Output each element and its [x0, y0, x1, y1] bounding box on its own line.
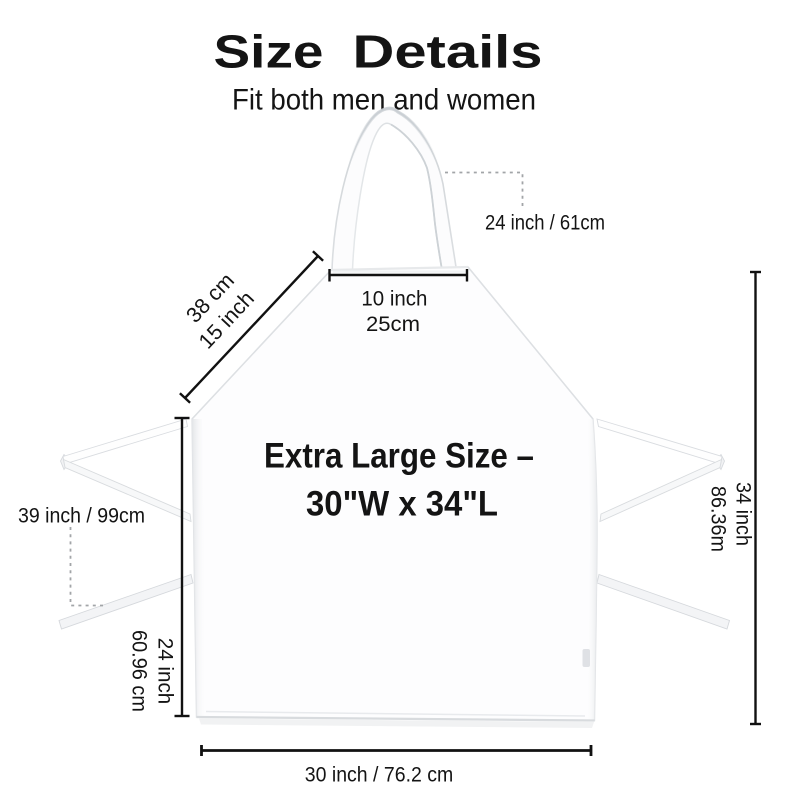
svg-text:24 inch / 61cm: 24 inch / 61cm [485, 211, 605, 235]
svg-text:86.36m: 86.36m [707, 486, 731, 552]
svg-text:34 inch: 34 inch [732, 482, 756, 546]
svg-text:Details: Details [353, 26, 543, 78]
svg-text:30 inch / 76.2 cm: 30 inch / 76.2 cm [305, 763, 454, 787]
svg-text:39 inch / 99cm: 39 inch / 99cm [18, 504, 145, 528]
svg-text:30"W x 34"L: 30"W x 34"L [306, 485, 498, 524]
svg-text:24 inch: 24 inch [154, 638, 178, 705]
svg-text:Extra Large Size –: Extra Large Size – [264, 437, 534, 476]
svg-text:25cm: 25cm [366, 312, 420, 336]
svg-text:Size: Size [214, 26, 324, 78]
svg-text:60.96 cm: 60.96 cm [127, 630, 151, 712]
svg-text:10 inch: 10 inch [361, 287, 427, 311]
